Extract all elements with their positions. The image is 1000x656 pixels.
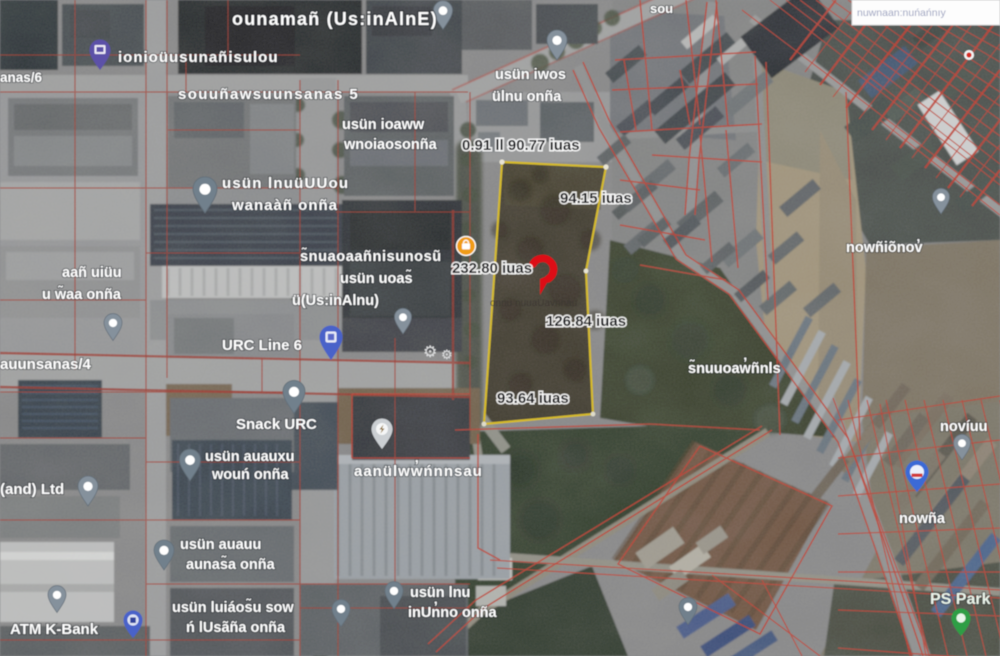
svg-text:aanülww̓ńnnsau: aanülww̓ńnnsau [354,461,483,480]
svg-text:232.80 iuas: 232.80 iuas [452,260,532,277]
svg-text:s̃nuuoaw̓ñnls: s̃nuuoaw̓ñnls [688,358,781,377]
svg-text:usün ioaww: usün ioaww [342,117,425,133]
svg-text:nuwnaan:nuńańnıy: nuwnaan:nuńańnıy [857,7,946,19]
svg-text:usün auauu: usün auauu [180,537,261,553]
svg-text:auunsanas/4: auunsanas/4 [0,356,92,373]
svg-text:anas/6: anas/6 [0,70,43,85]
svg-text:nowñiõnov̓: nowñiõnov̓ [846,239,923,256]
svg-text:⚙: ⚙ [441,347,453,362]
svg-text:inUn̓no onña: inUn̓no onña [408,602,498,621]
svg-text:94.15 iuas: 94.15 iuas [560,190,632,207]
svg-text:126.84 iuas: 126.84 iuas [546,313,626,330]
svg-text:novíuu: novíuu [940,419,988,435]
svg-text:Snack URC: Snack URC [236,416,317,433]
svg-text:usün luiáos̃u sow: usün luiáos̃u sow [172,598,294,616]
svg-text:ionioüusunañisulou: ionioüusunañisulou [118,49,279,66]
svg-text:usün iwos: usün iwos [495,67,566,83]
svg-text:ATM K-Bank: ATM K-Bank [10,621,99,638]
svg-text:93.64 iuas: 93.64 iuas [497,390,569,407]
svg-text:souuñawsuunsanas 5: souuñawsuunsanas 5 [178,86,359,103]
svg-text:aunas̃a onña: aunas̃a onña [186,555,276,573]
svg-text:u w̃aa onña: u w̃aa onña [42,285,122,303]
svg-text:onnu nuuaUavnnáu: onnu nuuaUavnnáu [490,298,577,309]
svg-text:ń lUsãña onña: ń lUsãña onña [186,620,286,636]
svg-text:ü(Us:inAlnu): ü(Us:inAlnu) [292,293,379,309]
svg-text:⚙: ⚙ [423,344,437,361]
svg-text:usün lnu: usün lnu [410,585,470,601]
svg-text:ounamañ (Us:inAlnE): ounamañ (Us:inAlnE) [232,9,438,29]
svg-text:usün lnuüUUou: usün lnuüUUou [222,175,349,192]
svg-text:(and) Ltd: (and) Ltd [0,481,64,498]
svg-text:PS Park: PS Park [930,591,991,608]
svg-text:wnoiaosonña: wnoiaosonña [343,137,438,153]
svg-text:nowña: nowña [899,511,946,527]
svg-text:URC Line 6: URC Line 6 [222,337,302,354]
svg-text:usün auauxu: usün auauxu [205,449,294,465]
svg-text:ülnu onña: ülnu onña [492,89,562,105]
svg-text:wouń onña: wouń onña [211,467,289,483]
svg-text:wanaàñ onña: wanaàñ onña [231,197,338,214]
svg-text:sou: sou [650,1,673,16]
svg-text:s̃nuaoaañnisunosũ: s̃nuaoaañnisunosũ [300,247,442,265]
svg-text:usün uoas̃: usün uoas̃ [340,269,413,287]
svg-text:aañ uiüu: aañ uiüu [62,265,122,281]
svg-text:0.91 ll 90.77 iuas: 0.91 ll 90.77 iuas [462,137,580,154]
